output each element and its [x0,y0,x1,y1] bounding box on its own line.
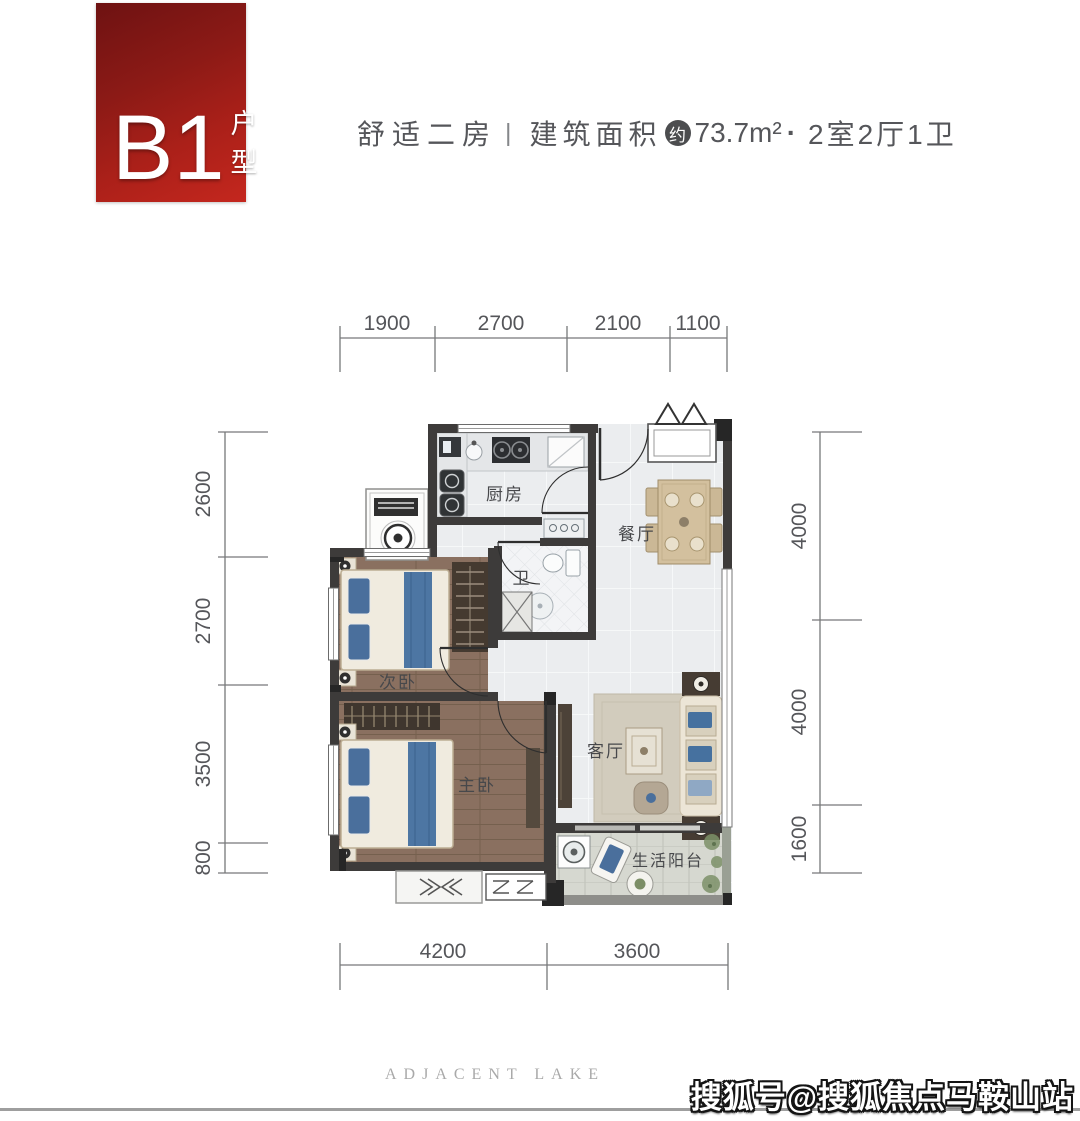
pillow-icon [348,578,370,614]
bedroom2-label: 次卧 [379,673,417,692]
dresser-icon [526,748,540,828]
dim-bottom: 4200 3600 [340,940,728,990]
dim-value: 4200 [420,940,467,963]
kitchen-label: 厨房 [486,485,524,504]
dim-top: 1900 2700 2100 1100 [340,312,727,372]
toilet-icon [566,550,580,576]
dim-left: 2600 2700 3500 800 [192,432,268,876]
living-label: 客厅 [587,742,625,761]
entry-bay-window-icon [648,404,716,462]
watermark: 搜狐号@搜狐焦点马鞍山站 [691,1072,1074,1117]
dining-label: 餐厅 [618,525,656,544]
basin-icon [440,470,464,492]
stove-icon [492,437,530,463]
dim-value: 2100 [595,312,642,335]
plant-icon [704,834,720,850]
living-window-icon [722,569,732,827]
dim-value: 2700 [192,598,215,645]
dim-value: 2600 [192,471,215,518]
dim-value: 4000 [788,689,811,736]
bath-label: 卫 [513,569,532,588]
page: B1 户型 舒适二房 | 建筑面积 约 73.7m² · 2室2厅1卫 [0,0,1080,1121]
dim-value: 2700 [478,312,525,335]
tv-console-icon [558,704,572,808]
dim-value: 3500 [192,741,215,788]
dim-value: 1600 [788,816,811,863]
dim-value: 1900 [364,312,411,335]
pillow-icon [348,624,370,660]
kitchen-window-icon [458,425,570,433]
pillow-icon [348,796,370,834]
bedroom2-top-window-icon [364,549,430,557]
dim-value: 800 [192,840,215,875]
master-label: 主卧 [458,776,496,795]
dim-value: 4000 [788,503,811,550]
pillow-icon [348,748,370,786]
dim-value: 3600 [614,940,661,963]
balcony-label: 生活阳台 [632,852,704,870]
bedroom2-side-window-icon [329,588,339,660]
low-window-icon [486,874,546,900]
plant-icon [711,856,723,868]
master-bay-window-icon [396,871,482,903]
master-side-window-icon [329,745,339,835]
ac-unit-icon [374,498,418,516]
plant-icon [702,875,720,893]
basin-icon [440,494,464,516]
floor-plan: 厨房 餐厅 卫 次卧 主卧 客厅 生活阳台 1900 2700 2100 110… [0,0,1080,1121]
dim-value: 1100 [675,312,720,335]
dim-right: 4000 4000 1600 [788,432,862,873]
sink-icon [466,444,482,460]
